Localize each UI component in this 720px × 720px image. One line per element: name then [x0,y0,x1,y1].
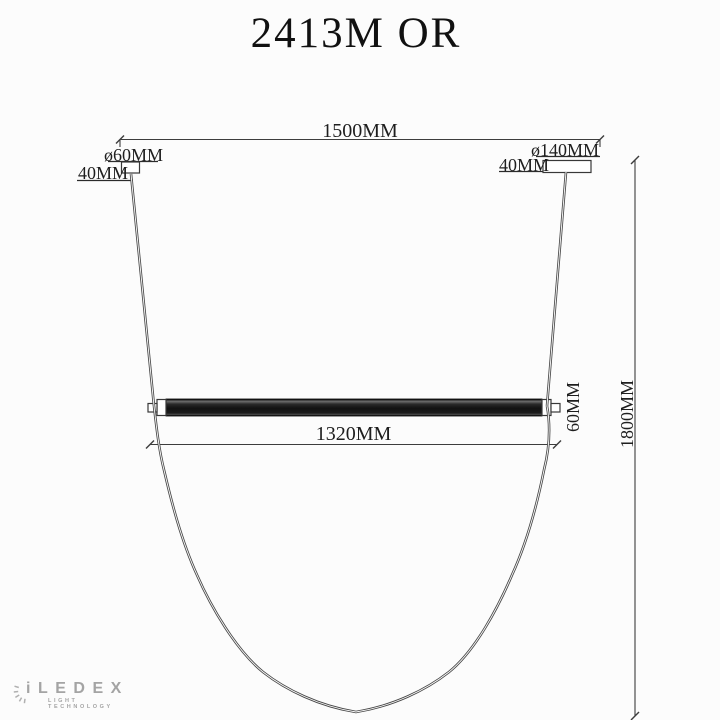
label-bar-length: 1320MM [0,424,707,444]
label-canopy-left-height: 40MM [78,164,128,182]
brand-logo: iLEDEX LIGHT TECHNOLOGY [12,674,142,710]
lamp-bar-tube [166,399,542,416]
lamp-bar-ring-right [551,404,560,413]
page-title: 2413M OR [0,12,712,55]
lamp-bar-endcap-left [157,400,166,416]
brand-name: iLEDEX [26,680,129,698]
label-bar-diameter: 60MM [564,377,582,437]
label-canopy-left-diameter: ø60MM [104,146,163,164]
brand-tagline: LIGHT TECHNOLOGY [48,698,142,710]
cord-loop [154,406,549,712]
lamp-bar [148,399,560,416]
label-overall-width: 1500MM [0,121,720,141]
label-suspension-height: 1800MM [618,374,636,454]
label-canopy-right-height: 40MM [499,156,549,174]
technical-drawing-page: 2413M OR 1500MM ø60MM 40MM ø140MM 40MM 1… [0,0,720,720]
canopy-right [543,161,591,173]
fixture-drawing [0,0,720,720]
